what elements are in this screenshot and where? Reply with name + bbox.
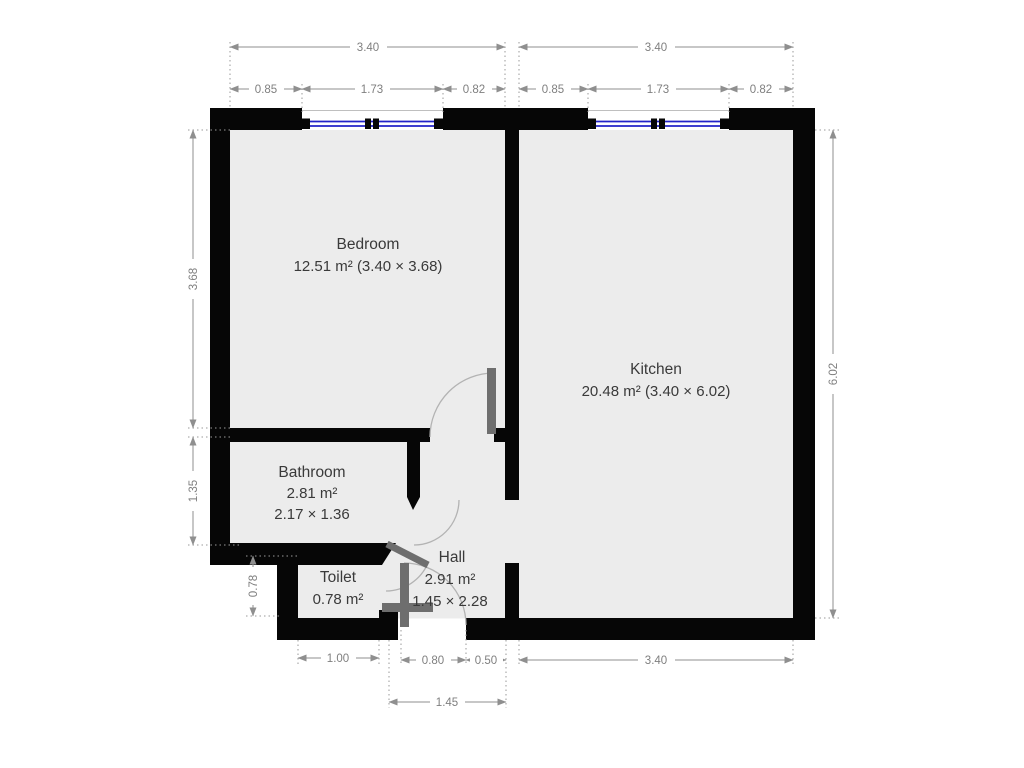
dim-label-kitchen-height: 6.02	[828, 363, 840, 385]
dim-kitchen-width-total: 3.40	[519, 40, 793, 54]
dim-toilet-width: 1.00	[298, 651, 379, 665]
bedroom-label: Bedroom	[337, 236, 400, 253]
bedroom-window-cap-left	[301, 119, 310, 130]
dim-kitchen-seg-right: 0.82	[729, 82, 793, 96]
dim-kitchen-width-bottom: 3.40	[519, 653, 793, 667]
dim-bedroom-height: 3.68	[186, 130, 200, 428]
wall-bedroom-door-stub	[494, 428, 519, 442]
dim-label-toilet-width: 1.00	[327, 653, 349, 665]
dim-label-entry-side-gap: 0.50	[475, 655, 497, 667]
dim-label-kitchen-seg-right: 0.82	[750, 84, 772, 96]
dim-label-bedroom-height: 3.68	[188, 268, 200, 290]
wall-entry-right-stub	[466, 618, 519, 640]
dim-label-toilet-height: 0.78	[248, 575, 260, 597]
dim-kitchen-seg-window: 1.73	[588, 82, 729, 96]
dim-label-bedroom-seg-left: 0.85	[255, 84, 277, 96]
kitchen-label: Kitchen	[630, 361, 682, 378]
dim-kitchen-seg-left: 0.85	[519, 82, 588, 96]
toilet-area: 0.78 m²	[313, 591, 364, 608]
dim-bedroom-seg-left: 0.85	[230, 82, 302, 96]
dim-label-kitchen-width-bottom: 3.40	[645, 655, 667, 667]
dim-label-kitchen-seg-window: 1.73	[647, 84, 669, 96]
bedroom-window	[301, 108, 443, 130]
floor-plan: Bedroom 12.51 m² (3.40 × 3.68) Kitchen 2…	[0, 0, 1024, 768]
bathroom-size: 2.17 × 1.36	[274, 506, 349, 523]
wall-bedroom-south	[230, 428, 430, 442]
wall-bedroom-kitchen	[505, 130, 519, 500]
dim-kitchen-height: 6.02	[826, 130, 840, 618]
floor-plan-canvas: Bedroom 12.51 m² (3.40 × 3.68) Kitchen 2…	[0, 0, 1024, 768]
hall-area: 2.91 m²	[425, 571, 476, 588]
dim-label-bedroom-seg-window: 1.73	[361, 84, 383, 96]
bedroom-window-mullion-a	[365, 119, 371, 130]
kitchen-window-cap-right	[720, 119, 729, 130]
dim-label-kitchen-width-total: 3.40	[645, 42, 667, 54]
wall-exterior-right	[793, 108, 815, 640]
dim-bedroom-seg-window: 1.73	[302, 82, 443, 96]
toilet-label: Toilet	[320, 569, 357, 586]
dim-label-bedroom-width-total: 3.40	[357, 42, 379, 54]
kitchen-window-cap-left	[587, 119, 596, 130]
bedroom-details: 12.51 m² (3.40 × 3.68)	[294, 258, 443, 275]
kitchen-details: 20.48 m² (3.40 × 6.02)	[582, 383, 731, 400]
kitchen-window	[587, 108, 729, 130]
bathroom-area: 2.81 m²	[287, 485, 338, 502]
entry-door-leaf	[400, 563, 409, 627]
wall-hall-kitchen-lower	[505, 563, 519, 623]
bathroom-label: Bathroom	[278, 464, 345, 481]
wall-bathroom-hall	[407, 442, 420, 497]
dim-hall-width: 1.45	[389, 695, 506, 709]
bedroom-door-leaf	[487, 368, 496, 434]
hall-label: Hall	[439, 549, 466, 566]
dim-entry-door-width: 0.80	[401, 653, 466, 667]
dim-label-entry-door-width: 0.80	[422, 655, 444, 667]
wall-toilet-right-stub	[379, 610, 398, 640]
kitchen-window-mullion-a	[651, 119, 657, 130]
dim-bathroom-height: 1.35	[186, 437, 200, 545]
wall-exterior-left	[210, 108, 230, 565]
dim-entry-side-gap: 0.50	[466, 653, 506, 667]
hall-size: 1.45 × 2.28	[412, 593, 487, 610]
bedroom-window-mullion-b	[373, 119, 379, 130]
kitchen-window-mullion-b	[659, 119, 665, 130]
dim-label-bedroom-seg-right: 0.82	[463, 84, 485, 96]
wall-kitchen-south	[506, 618, 815, 640]
dim-label-bathroom-height: 1.35	[188, 480, 200, 502]
bedroom-window-cap-right	[434, 119, 443, 130]
dim-label-hall-width: 1.45	[436, 697, 458, 709]
dim-label-kitchen-seg-left: 0.85	[542, 84, 564, 96]
dim-bedroom-width-total: 3.40	[230, 40, 505, 54]
dim-bedroom-seg-right: 0.82	[443, 82, 505, 96]
